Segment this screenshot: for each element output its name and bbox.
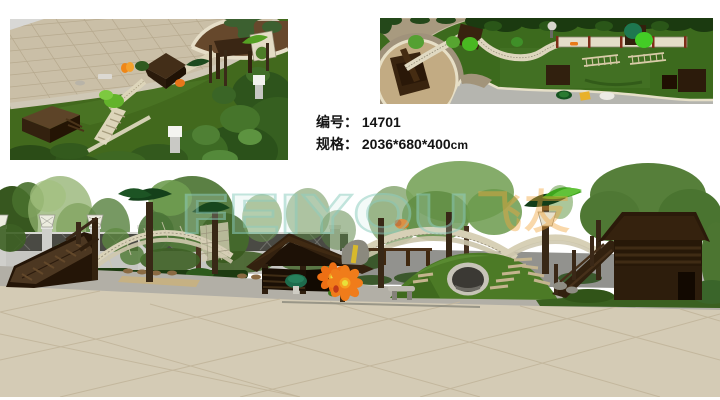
svg-text:飞友: 飞友: [476, 186, 572, 238]
svg-text:FEIYOU: FEIYOU: [181, 182, 469, 245]
